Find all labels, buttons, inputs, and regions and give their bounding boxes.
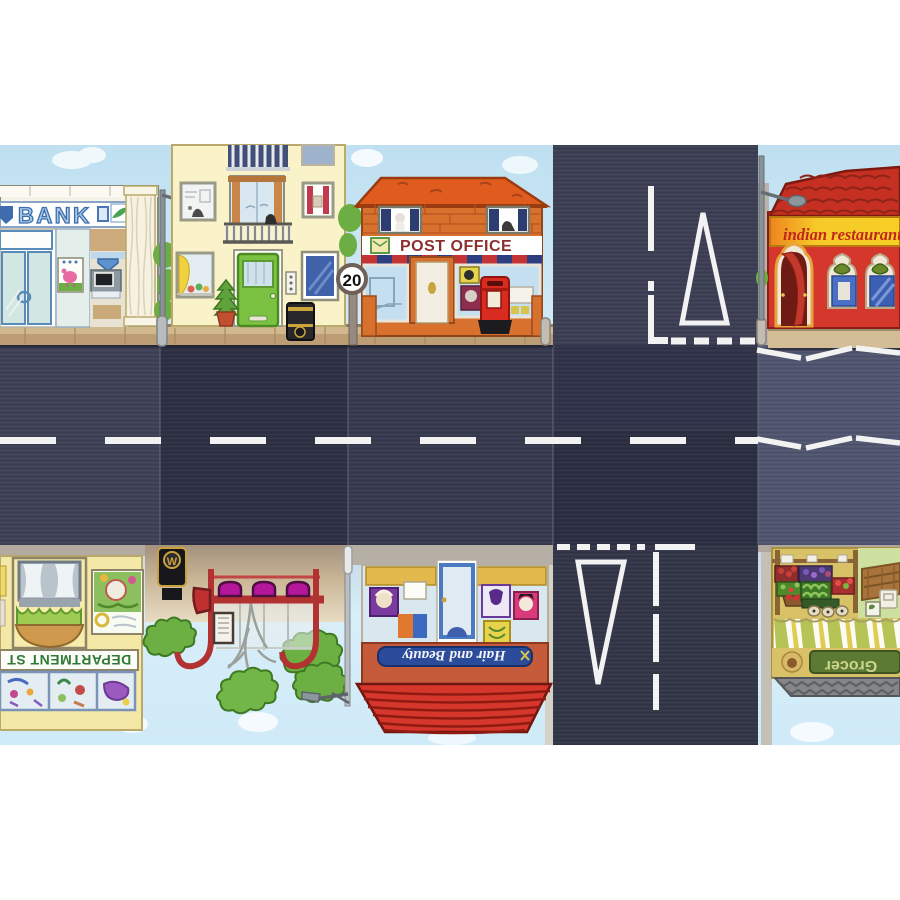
- svg-text:POST OFFICE: POST OFFICE: [400, 238, 512, 255]
- svg-text:indian restaurant: indian restaurant: [783, 225, 900, 244]
- svg-text:Grocer: Grocer: [825, 657, 877, 674]
- svg-text:Hair and Beauty: Hair and Beauty: [402, 647, 507, 663]
- svg-text:20: 20: [343, 271, 362, 290]
- svg-text:DEPARTMENT ST: DEPARTMENT ST: [7, 652, 131, 668]
- svg-text:W: W: [167, 556, 178, 568]
- svg-text:BANK: BANK: [18, 203, 92, 228]
